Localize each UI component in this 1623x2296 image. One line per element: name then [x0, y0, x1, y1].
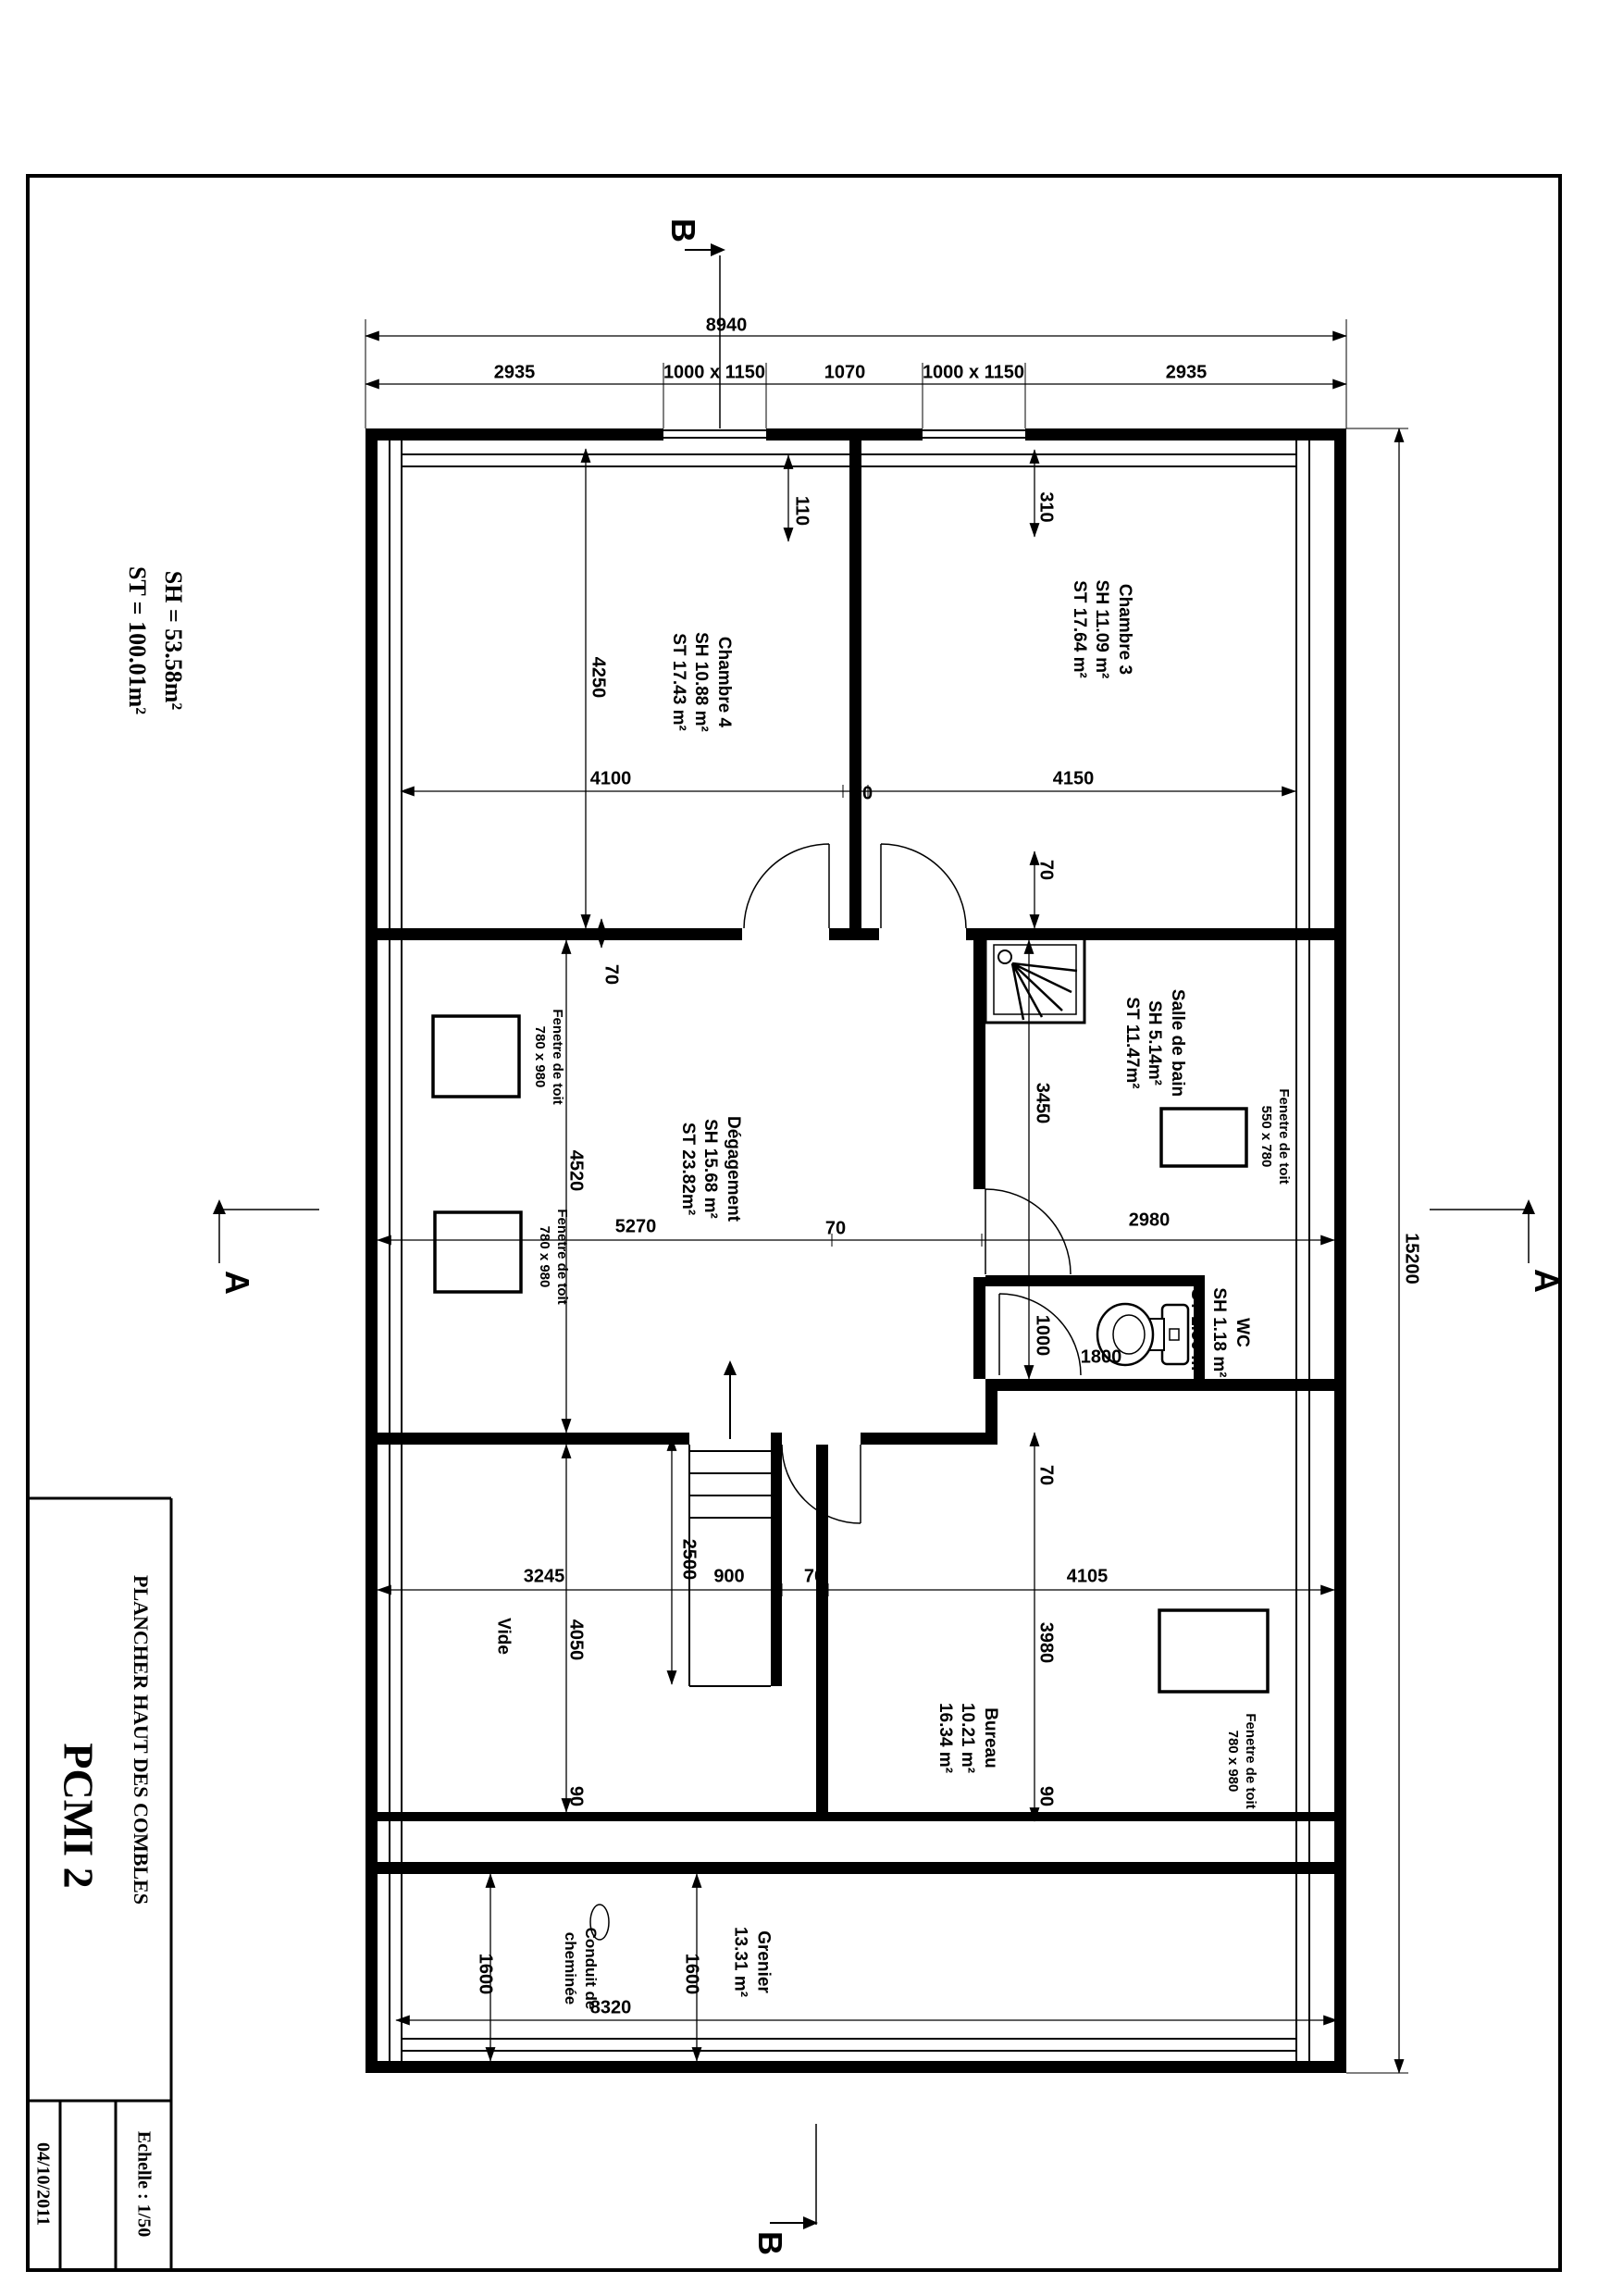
room-label-vide: Vide [491, 1618, 514, 1655]
dim-stair-length: 2500 [678, 1539, 700, 1581]
room-st: ST 17.43 m² [666, 632, 689, 732]
room-name: Salle de bain [1165, 989, 1188, 1097]
dim-110: 110 [791, 496, 812, 526]
dim-bureau-depth: 3980 [1035, 1622, 1057, 1664]
dim-chambre4-width: 4100 [590, 769, 632, 790]
room-label-degagement: Dégagement SH 15.68 m² ST 23.82m² [675, 1116, 744, 1222]
dim-right-overall: 15200 [1401, 1233, 1422, 1285]
room-name: WC [1230, 1287, 1253, 1377]
room-sh: SH 5.14m² [1143, 989, 1166, 1097]
page-frame [28, 176, 1560, 2270]
dim-wall90-right: 90 [1035, 1786, 1057, 1806]
room-label-wc: WC SH 1.18 m² ST 1.50 m² [1184, 1287, 1253, 1377]
title-block-subtitle: PLANCHER HAUT DES COMBLES [129, 1575, 153, 1905]
dim-grenier-depth-1: 1600 [475, 1954, 496, 1995]
room-sh: SH 11.09 m² [1090, 580, 1113, 679]
dim-chambre3-width: 4150 [1053, 769, 1095, 790]
st-total: ST = 100.01m² [119, 566, 155, 714]
dim-wall90-left: 90 [565, 1786, 587, 1806]
dim-vide-depth: 4050 [565, 1620, 587, 1661]
dim-chambre4-depth: 4250 [588, 657, 609, 699]
roof-window-label-1: Fenetre de toit 780 x 980 [530, 1009, 565, 1104]
dim-grenier-depth-2: 1600 [681, 1954, 702, 1995]
sh-total: SH = 53.58m² [155, 566, 192, 714]
dim-bureau-width: 4105 [1067, 1567, 1109, 1588]
roof-window-label-3: Fenetre de toit 550 x 780 [1257, 1088, 1292, 1184]
room-name: Bureau [978, 1703, 1001, 1773]
room-name: Dégagement [721, 1116, 744, 1222]
dim-top-window1: 1000 x 1150 [663, 363, 765, 384]
dim-wall70-chambre3: 70 [1035, 860, 1057, 880]
dim-sdb-depth: 3450 [1032, 1083, 1053, 1124]
room-label-chambre4: Chambre 4 SH 10.88 m² ST 17.43 m² [666, 632, 735, 732]
chimney-line2: cheminée [560, 1928, 580, 2010]
room-name: Grenier [751, 1927, 774, 1997]
room-st: ST 23.82m² [675, 1116, 699, 1222]
section-marker-a-left: A [217, 1271, 256, 1295]
dim-wc-length: 1800 [1081, 1347, 1122, 1369]
dim-degagement-width: 5270 [615, 1217, 657, 1238]
room-area: 13.31 m² [728, 1927, 751, 1997]
area-totals: SH = 53.58m² ST = 100.01m² [119, 566, 192, 714]
floor-plan-page: SH = 53.58m² ST = 100.01m² Chambre 3 SH … [0, 0, 1623, 2296]
room-sh: SH 15.68 m² [699, 1116, 722, 1222]
window-label: Fenetre de toit [1241, 1713, 1258, 1808]
dimension-extension-lines [365, 319, 1408, 2073]
dim-vide-width: 3245 [524, 1567, 565, 1588]
window-size: 780 x 980 [535, 1209, 552, 1304]
title-block-date: 04/10/2011 [32, 2142, 54, 2226]
dim-310: 310 [1035, 491, 1057, 522]
plan-linework [0, 0, 1623, 2296]
window-label: Fenetre de toit [552, 1209, 570, 1304]
roof-window-label-2: Fenetre de toit 780 x 980 [535, 1209, 570, 1304]
room-name: Chambre 3 [1112, 580, 1135, 679]
dim-wall70-bureau: 70 [1035, 1465, 1057, 1485]
room-st: ST 1.50 m² [1184, 1287, 1208, 1377]
room-st: ST 11.47m² [1120, 989, 1143, 1097]
dim-top-overall: 8940 [706, 316, 748, 337]
window-label: Fenetre de toit [548, 1009, 565, 1104]
shower [985, 937, 1084, 1023]
room-st: 16.34 m² [933, 1703, 956, 1773]
window-size: 780 x 980 [530, 1009, 548, 1104]
dim-top-seg5: 2935 [1166, 363, 1208, 384]
room-label-bureau: Bureau 10.21 m² 16.34 m² [933, 1703, 1001, 1773]
stairs [689, 1371, 771, 1686]
section-marker-b-top: B [663, 218, 702, 242]
walls [365, 428, 1346, 2073]
title-block-scale: Echelle : 1/50 [133, 2131, 155, 2237]
roof-window-label-4: Fenetre de toit 780 x 980 [1223, 1713, 1258, 1808]
room-label-grenier: Grenier 13.31 m² [728, 1927, 774, 1997]
dim-top-window2: 1000 x 1150 [923, 363, 1024, 384]
doors [744, 844, 1081, 1523]
room-label-chambre3: Chambre 3 SH 11.09 m² ST 17.64 m² [1067, 580, 1135, 679]
dim-top-seg1: 2935 [494, 363, 536, 384]
dim-degagement-depth: 4520 [565, 1150, 587, 1192]
window-size: 780 x 980 [1223, 1713, 1241, 1808]
dim-grenier-width: 8320 [590, 1998, 632, 2019]
dim-wall70-mid: 70 [825, 1219, 846, 1240]
room-sh: SH 1.18 m² [1208, 1287, 1231, 1377]
section-marker-a-right: A [1527, 1269, 1566, 1293]
room-name: Vide [491, 1618, 514, 1655]
dim-wc-depth: 1000 [1032, 1315, 1053, 1357]
room-st: ST 17.64 m² [1067, 580, 1090, 679]
dim-stair-width: 900 [713, 1567, 744, 1588]
section-marker-b-bottom: B [750, 2231, 789, 2255]
dim-wall70-deg: 70 [601, 964, 622, 985]
room-label-salle-de-bain: Salle de bain SH 5.14m² ST 11.47m² [1120, 989, 1188, 1097]
window-label: Fenetre de toit [1274, 1088, 1292, 1184]
title-block-title: PCMI 2 [55, 1743, 104, 1888]
section-lines [219, 250, 1529, 2225]
room-sh: SH 10.88 m² [689, 632, 712, 732]
room-sh: 10.21 m² [956, 1703, 979, 1773]
stairs-up-arrow [724, 1360, 737, 1375]
dim-top-seg3: 1070 [824, 363, 866, 384]
window-size: 550 x 780 [1257, 1088, 1274, 1184]
dim-wall70-chambres: 70 [852, 784, 873, 805]
dim-wall70-low: 70 [804, 1567, 824, 1588]
dim-sdb-width: 2980 [1129, 1210, 1171, 1232]
room-name: Chambre 4 [712, 632, 735, 732]
